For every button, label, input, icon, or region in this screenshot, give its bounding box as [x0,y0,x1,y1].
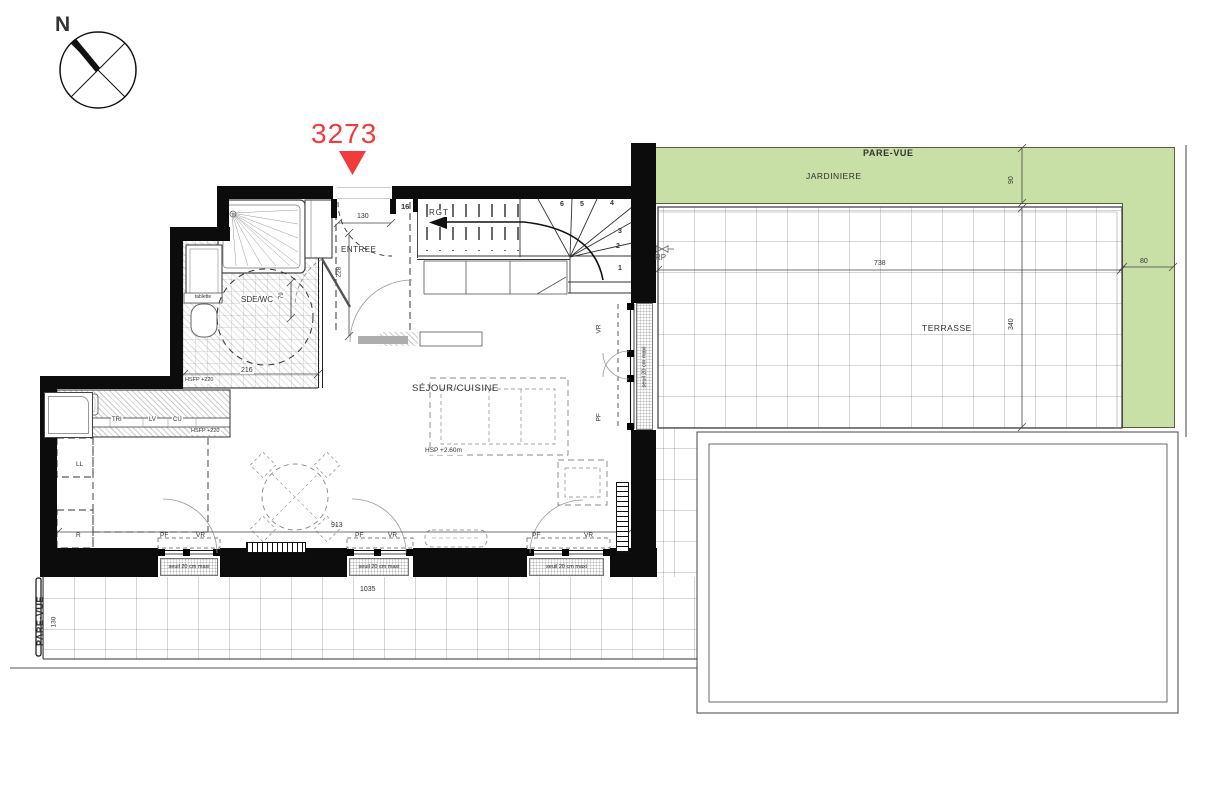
dim-130-left: 130 [52,617,59,628]
window-east-pf-label: PF [597,413,604,421]
vanity [305,200,332,258]
sejour-cuisine-label: SÉJOUR/CUISINE [412,384,499,394]
radiator-south [246,542,306,553]
pare-vue-left-label: PARE-VUE [36,596,45,646]
stair-number-1: 1 [618,265,622,272]
wall-bottom-a [40,548,158,577]
seuil-box-1: seuil 20 cm maxi [160,558,218,576]
unit-number: 3273 [311,120,377,148]
stair-number-6: 6 [560,201,564,208]
wall-top-left [217,186,333,199]
entree-label: ENTREE [341,246,376,254]
cu-label: CU [172,417,183,423]
dim-913: 913 [331,522,343,529]
wall-kitchen-top [40,376,183,389]
window1-vr-label: VR [196,533,205,540]
stair-number-5: 5 [580,201,584,208]
wall-bottom-c [413,548,527,577]
wall-right-upper [631,143,656,303]
compass-north-label: N [55,14,70,35]
compass-icon [60,32,136,108]
understair-cabinets [420,261,567,346]
seuil-text: seuil 20 cm maxi [169,564,210,570]
window-east [603,303,634,430]
sde-wc-label: SDE/WC [240,296,274,304]
stair-number-3: 3 [618,228,622,235]
dim-80: 80 [1140,258,1148,265]
stair-number-2: 2 [616,243,620,250]
shower [218,200,305,273]
dim-1035: 1035 [360,586,376,593]
window1-pf-label: PF [160,533,168,540]
seuil-box-east: seuil 20 cm maxi [636,303,653,430]
wall-jamb-1 [331,199,337,218]
tablette-label: tablette [184,295,222,300]
lv-label: LV [148,417,157,423]
seuil-text: seuil 20 cm maxi [642,346,648,387]
window-east-vr-label: VR [597,324,604,333]
window2-vr-label: VR [388,533,397,540]
dim-340: 340 [1008,318,1015,330]
wall-jamb-2 [390,199,396,214]
dim-738: 738 [874,260,886,267]
stair-number-4: 4 [610,200,614,207]
floor-plan: seuil 20 cm maxi seuil 20 cm maxi seuil … [0,0,1211,800]
wall-jamb-3 [413,199,418,212]
rp-label: RP [655,254,666,262]
window3-pf-label: PF [532,533,540,540]
jardiniere-label: JARDINIERE [806,172,862,181]
wall-right-lower [631,430,656,577]
ll-label: LL [76,462,83,469]
hsp-label: HSP +2.60m [424,448,463,455]
pare-vue-top-label: PARE-VUE [863,149,914,158]
radiator-east [616,482,629,553]
dim-130-entry: 130 [357,213,369,220]
tri-label: TRI [111,417,123,423]
hsfp-cuisine-label: HSFP +220 [190,429,221,435]
r-label: R [76,533,81,540]
wall-sde-left [170,227,183,388]
seuil-text: seuil 20 cm maxi [359,564,400,570]
window3-vr-label: VR [584,533,593,540]
dim-216: 216 [240,367,254,374]
seuil-box-2: seuil 20 cm maxi [349,558,409,576]
rgt-label: RGT [428,209,450,217]
wall-top-right [392,186,656,199]
unit-pointer-icon [339,151,366,175]
steps-count-label: 16 [401,203,409,211]
seuil-box-3: seuil 20 cm maxi [529,558,604,576]
plan-linework [0,0,1211,800]
dim-79: 79 [279,291,285,300]
seuil-text: seuil 20 cm maxi [546,564,587,570]
dim-90: 90 [1008,176,1015,184]
terrasse-label: TERRASSE [922,324,972,333]
dim-228: 228 [337,267,344,278]
left-wall-window [44,392,93,438]
sejour-furniture [250,378,607,547]
hsfp-sde-label: HSFP +220 [184,378,215,384]
window2-pf-label: PF [355,533,363,540]
